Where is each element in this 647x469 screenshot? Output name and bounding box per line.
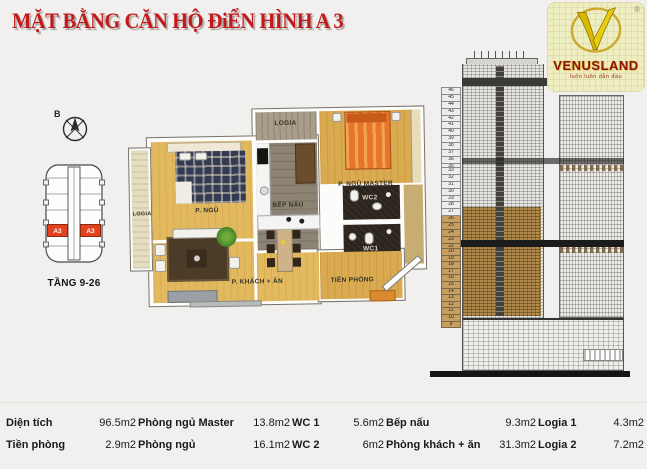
keyplan-unit-a3-left: A3 (47, 224, 68, 237)
window-detail-row (560, 247, 623, 253)
chair (293, 258, 301, 267)
room-label-logia-top: LOGIA (265, 119, 307, 127)
ground-line (430, 371, 630, 377)
area-grid: Diện tích96.5m2Phòng ngủ Master13.8m2WC … (6, 417, 647, 451)
floor-number: 36 (441, 157, 461, 164)
chair (267, 258, 275, 267)
floor-number: 27 (441, 209, 461, 216)
floor-number: 38 (441, 143, 461, 150)
keyplan-unit-a3-right: A3 (80, 224, 101, 237)
floor-number: 44 (441, 102, 461, 109)
pillow (346, 113, 386, 123)
room-label-wc1: WC1 (345, 245, 397, 253)
floor-number: 24 (441, 230, 461, 237)
floor-number: 46 (441, 87, 461, 95)
floor-ruler-upper: 46454443424140393837363534 (441, 87, 461, 178)
chair (266, 230, 274, 239)
north-arrow-icon (58, 112, 90, 144)
floor-number: 45 (441, 95, 461, 102)
floor-number: 31 (441, 182, 461, 189)
floor-number: 28 (441, 202, 461, 209)
floor-number: 9 (441, 322, 461, 329)
floor-number: 17 (441, 269, 461, 276)
room-label-entry: TIỀN PHÒNG (317, 276, 387, 284)
page-title: MẶT BẰNG CĂN HỘ ĐiỂN HÌNH A 3 (12, 8, 343, 34)
keyplan-building-footprint (42, 162, 106, 265)
floor-ruler-mid: 33323130292827262524232221 (441, 167, 461, 258)
sofa (172, 228, 222, 239)
area-value: 31.3m2 (490, 439, 536, 451)
floor-number: 11 (441, 308, 461, 315)
burner (286, 217, 291, 222)
floor-number: 30 (441, 189, 461, 196)
room-logia-left (131, 150, 150, 268)
door-mat (369, 290, 395, 301)
mechanical-band (462, 158, 624, 164)
balcony-door (190, 300, 262, 307)
floor-number: 32 (441, 175, 461, 182)
area-value: 96.5m2 (88, 417, 136, 429)
area-value: 13.8m2 (244, 417, 290, 429)
floor-number: 29 (441, 196, 461, 203)
area-label: Phòng ngủ Master (138, 417, 242, 429)
floor-number: 13 (441, 295, 461, 302)
floor-number: 15 (441, 282, 461, 289)
floor-number: 41 (441, 122, 461, 129)
chair (293, 244, 301, 253)
keyplan-floor-range-label: TẦNG 9-26 (32, 278, 116, 289)
table-decor (281, 240, 286, 245)
floor-number: 26 (441, 216, 461, 223)
room-label-wc2: WC2 (344, 194, 396, 202)
floor-number: 37 (441, 150, 461, 157)
armchair (155, 260, 166, 272)
podium (462, 318, 624, 371)
room-label-bedroom: P. NGỦ (177, 207, 237, 215)
area-value: 5.6m2 (334, 417, 384, 429)
secondary-tower-facade (559, 95, 624, 318)
sink (260, 186, 269, 195)
floor-number: 40 (441, 129, 461, 136)
logo-brand-text: VENUSLAND (547, 58, 645, 73)
dining-table (276, 228, 293, 272)
room-label-logia-left: LOGIA (128, 211, 156, 217)
chair (292, 230, 300, 239)
floor-number: 43 (441, 109, 461, 116)
area-label: Logia 1 (538, 417, 592, 429)
floor-number: 18 (441, 262, 461, 269)
table-decor (194, 255, 200, 261)
floor-number: 33 (441, 167, 461, 175)
area-value: 4.3m2 (594, 417, 644, 429)
area-label: Logia 2 (538, 439, 592, 451)
floor-number: 42 (441, 116, 461, 123)
armchair (229, 257, 240, 269)
area-value: 16.1m2 (244, 439, 290, 451)
area-table: Diện tích96.5m2Phòng ngủ Master13.8m2WC … (0, 402, 647, 451)
venusland-v-emblem-icon (568, 5, 624, 57)
cabinet (295, 143, 316, 183)
pillow (195, 152, 207, 160)
floor-number: 19 (441, 256, 461, 263)
room-closet-strip (404, 184, 424, 263)
floor-number: 25 (441, 223, 461, 230)
armchair (155, 244, 166, 256)
floor-ruler-lower: 20191817161514131211109 (441, 248, 461, 328)
area-label: Phòng ngủ (138, 439, 242, 451)
area-label: Bếp nấu (386, 417, 488, 429)
mechanical-band (456, 240, 624, 247)
burner (299, 219, 304, 224)
area-label: WC 2 (292, 439, 332, 451)
floor-number: 14 (441, 289, 461, 296)
apartment-floor-plan: LOGIA P. NGỦ MASTER P. NGỦ BẾP NẤU WC2 W… (126, 103, 429, 308)
bed-throw (176, 182, 192, 204)
registered-mark-icon: ® (634, 5, 640, 14)
area-value: 7.2m2 (594, 439, 644, 451)
floor-number: 20 (441, 248, 461, 256)
master-closet (410, 110, 421, 183)
pillow (179, 153, 191, 161)
floor-number: 12 (441, 302, 461, 309)
toilet (364, 232, 373, 244)
floor-number: 23 (441, 237, 461, 244)
area-label: Diện tích (6, 417, 86, 429)
area-label: Tiền phòng (6, 439, 86, 451)
nightstand (391, 112, 400, 121)
cooktop (257, 148, 268, 164)
podium-panel (583, 349, 623, 361)
floor-number: 16 (441, 275, 461, 282)
area-value: 2.9m2 (88, 439, 136, 451)
floor-number: 10 (441, 315, 461, 322)
room-label-kitchen: BẾP NẤU (258, 201, 318, 209)
floor-number: 39 (441, 136, 461, 143)
chair (267, 244, 275, 253)
area-label: Phòng khách + ăn (386, 439, 488, 451)
nightstand (332, 113, 341, 122)
window-detail-row (560, 165, 623, 171)
area-value: 6m2 (334, 439, 384, 451)
tower-core-shaft (496, 66, 504, 316)
logo-tagline-text: luôn luôn dẫn đầu (547, 74, 645, 80)
shower-head (386, 229, 391, 234)
area-label: WC 1 (292, 417, 332, 429)
area-value: 9.3m2 (490, 417, 536, 429)
venusland-logo: ® VENUSLAND luôn luôn dẫn đầu (547, 2, 645, 92)
